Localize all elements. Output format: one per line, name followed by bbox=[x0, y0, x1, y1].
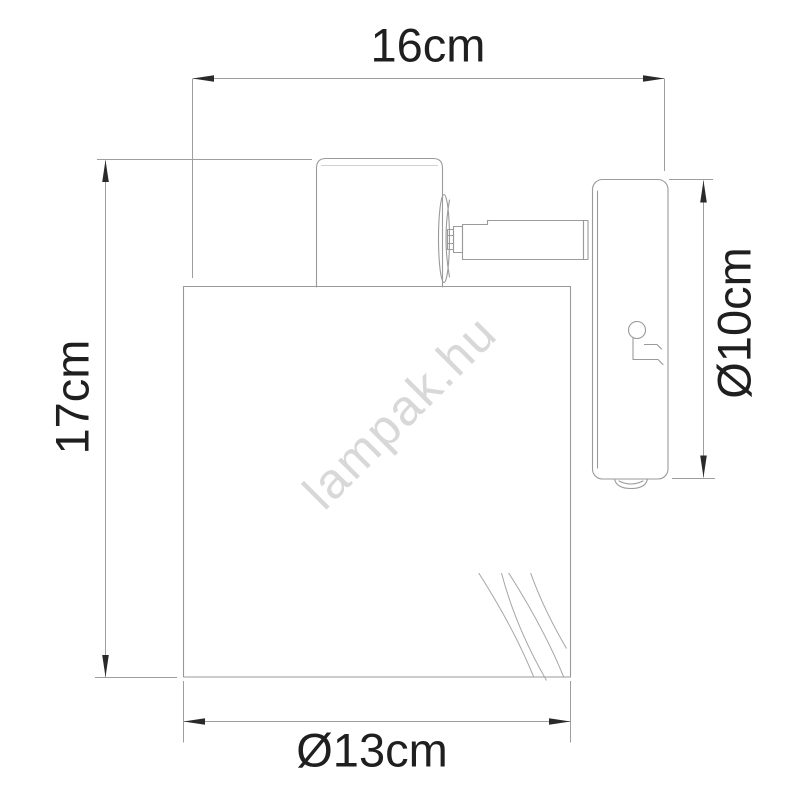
dim-height-label: 17cm bbox=[46, 340, 99, 455]
dimension-backplate-diameter: Ø10cm bbox=[669, 180, 761, 479]
lamp-head-outline bbox=[317, 159, 443, 288]
mounting-arm bbox=[463, 221, 589, 260]
pivot-knuckle-small bbox=[448, 230, 454, 250]
dim-width-arrow-left-icon bbox=[193, 75, 215, 82]
dim-plate-arrow-bottom-icon bbox=[700, 456, 707, 478]
switch-knob-inner bbox=[619, 481, 643, 484]
dim-width-arrow-right-icon bbox=[643, 75, 665, 82]
dim-shade-arrow-right-icon bbox=[549, 718, 571, 725]
dim-width-label: 16cm bbox=[371, 19, 486, 72]
shade-left-arc-2 bbox=[188, 315, 241, 649]
dim-shade-arrow-left-icon bbox=[184, 718, 206, 725]
mounting-keyhole-bracket bbox=[633, 338, 663, 365]
lamp-shade bbox=[184, 283, 571, 681]
pivot-knuckle-ribs bbox=[448, 236, 454, 244]
drawing-canvas: lampak.hu bbox=[0, 0, 800, 800]
wall-lamp-technical-drawing: lampak.hu bbox=[0, 0, 800, 800]
watermark-text: lampak.hu bbox=[292, 304, 507, 519]
mounting-keyhole-icon bbox=[629, 322, 646, 339]
shade-crisscross-pattern bbox=[188, 283, 567, 681]
shade-right-arc-2 bbox=[514, 315, 567, 649]
wall-plate-outline bbox=[593, 180, 669, 480]
wall-plate bbox=[593, 180, 669, 489]
dim-height-arrow-bottom-icon bbox=[102, 655, 109, 677]
arm-outline bbox=[463, 221, 584, 260]
shade-outline bbox=[184, 287, 571, 678]
shade-left-arc-1 bbox=[208, 283, 265, 681]
arm-washer bbox=[584, 221, 589, 260]
dimension-total-height: 17cm bbox=[46, 160, 313, 678]
pivot-knuckle-large bbox=[454, 227, 463, 253]
dim-plate-arrow-top-icon bbox=[700, 181, 707, 203]
dimension-total-width: 16cm bbox=[193, 19, 665, 279]
dim-shade-label: Ø13cm bbox=[296, 724, 448, 777]
watermark: lampak.hu bbox=[292, 304, 507, 519]
dim-height-arrow-top-icon bbox=[102, 160, 109, 182]
dimension-shade-diameter: Ø13cm bbox=[184, 681, 571, 777]
lamp-head bbox=[317, 159, 443, 288]
dim-plate-label: Ø10cm bbox=[708, 247, 761, 399]
